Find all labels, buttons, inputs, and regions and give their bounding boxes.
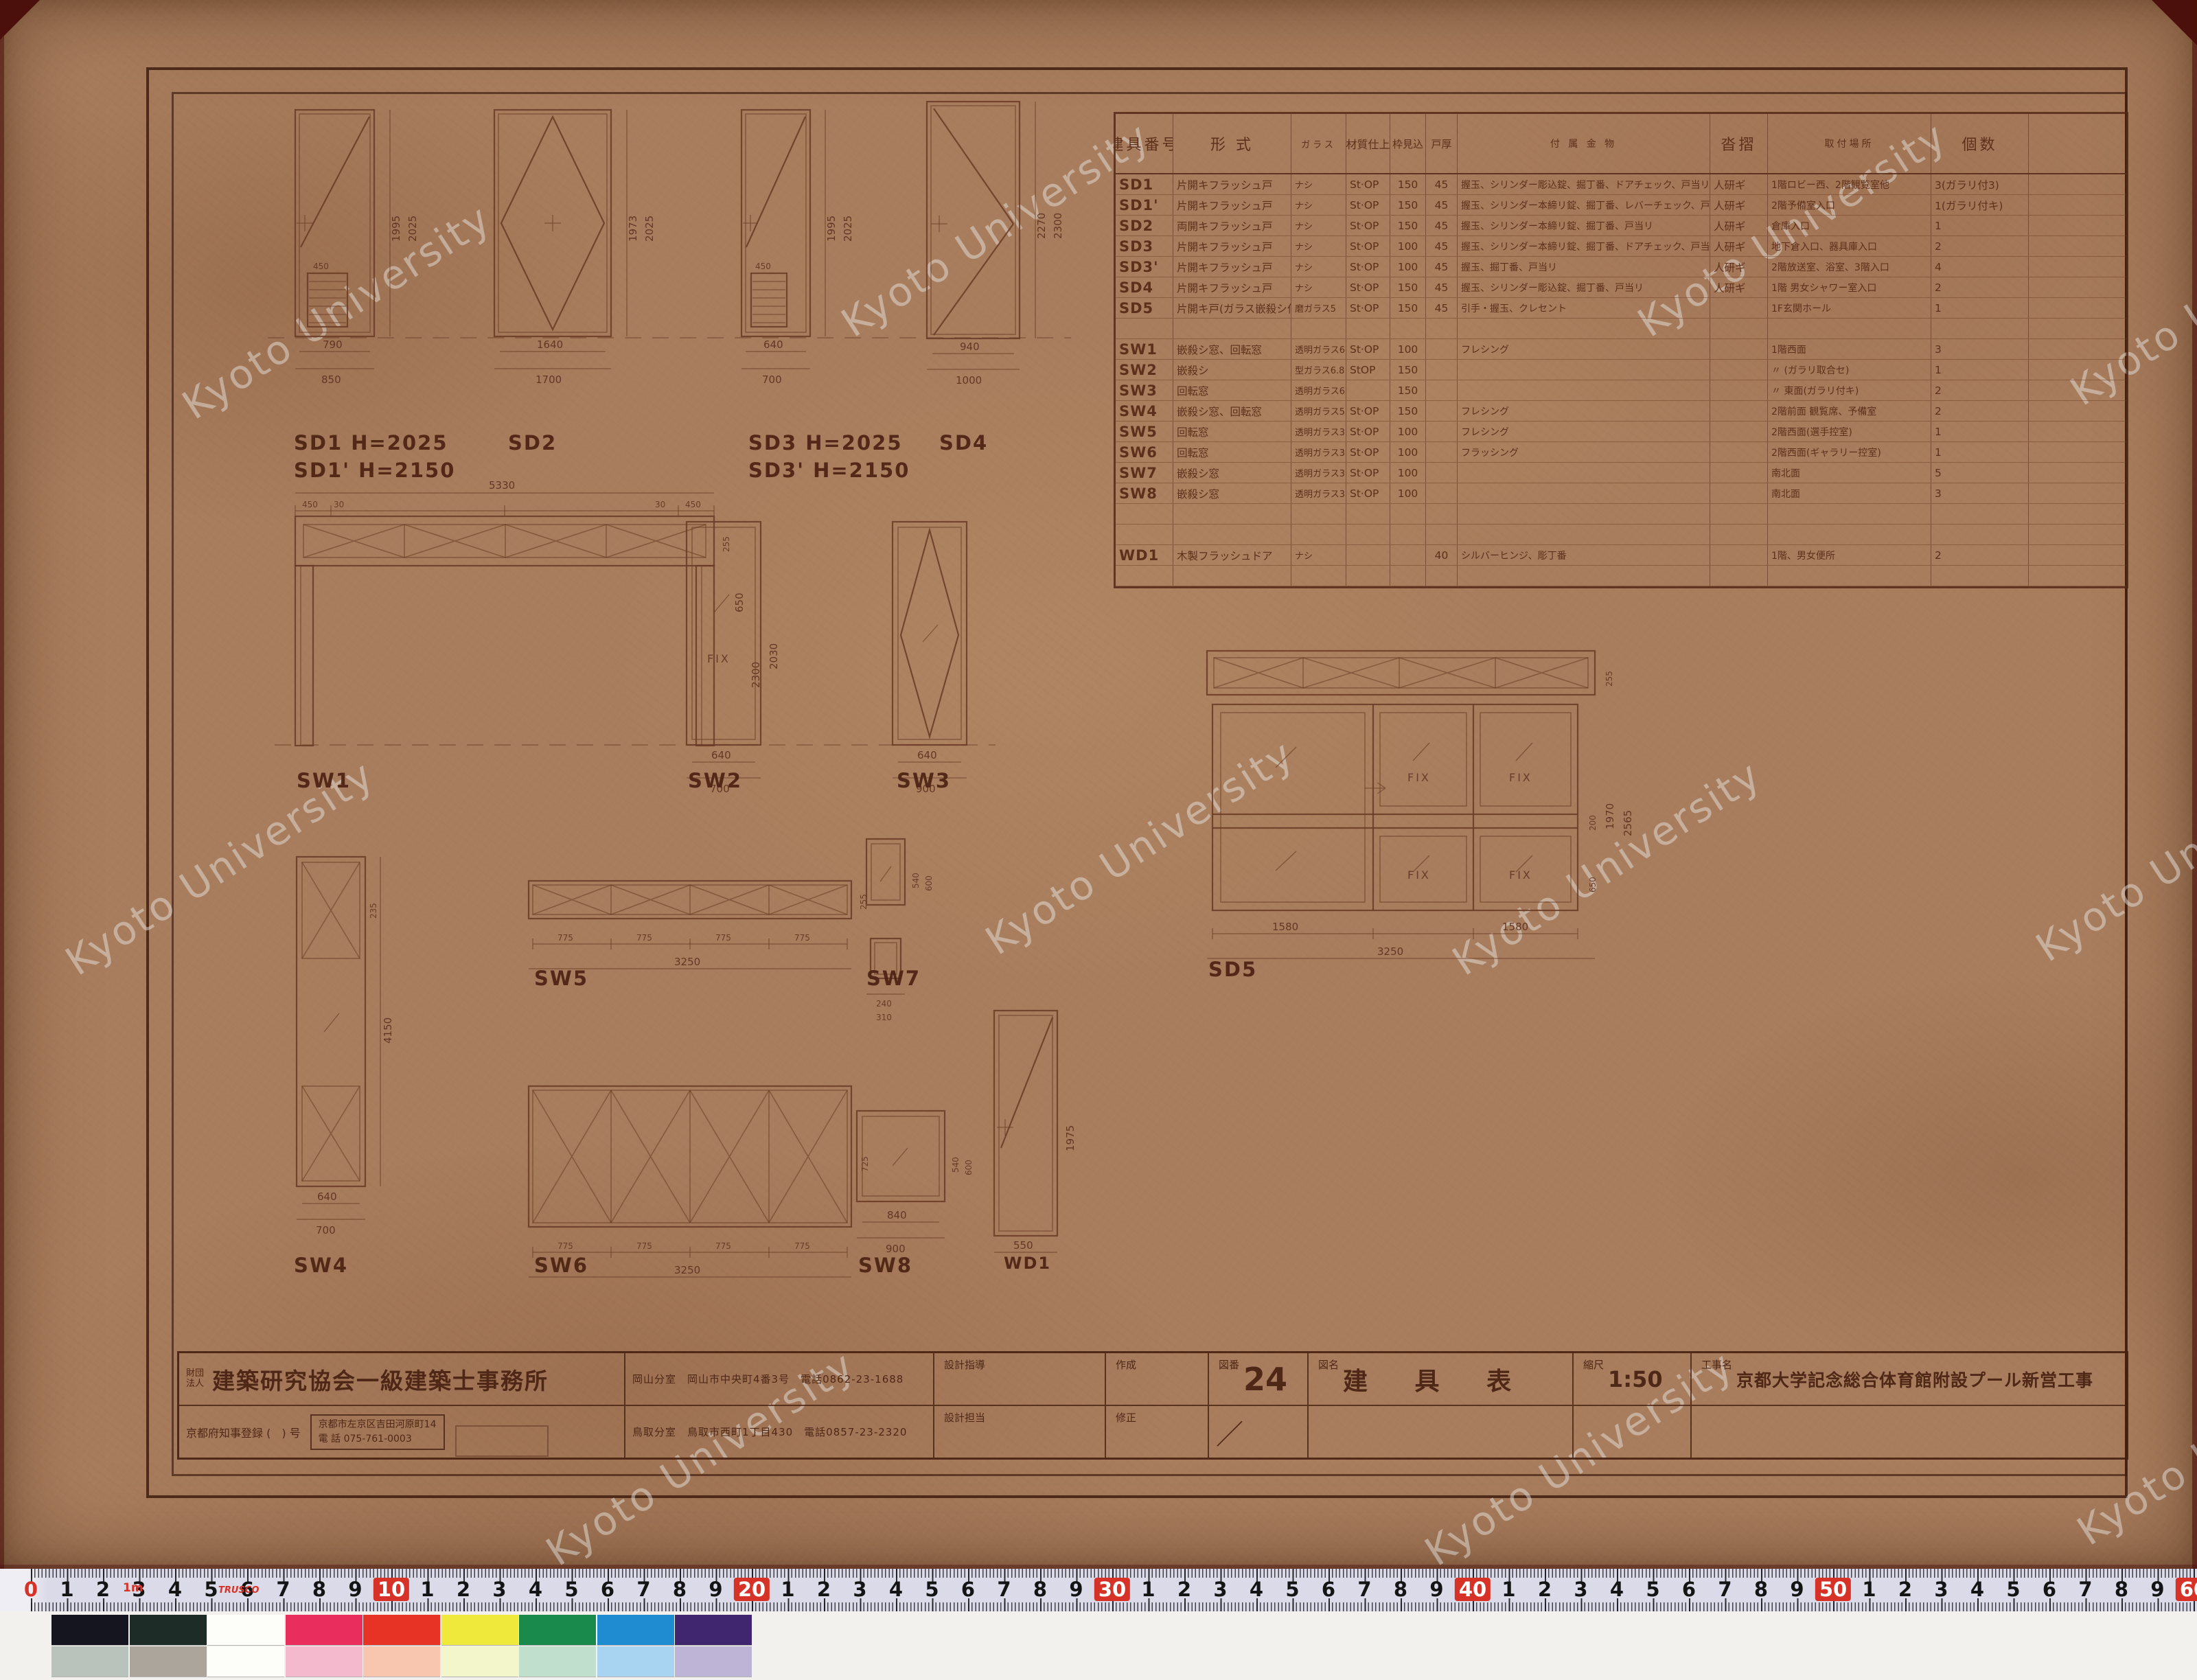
cell-thickness [1426, 504, 1458, 524]
cell-remarks [2029, 174, 2126, 194]
label-sd1b: SD1' H=2150 [294, 459, 455, 482]
cell-id: SW6 [1116, 442, 1173, 462]
cell-finish [1346, 504, 1390, 524]
ruler-number: 7 [997, 1578, 1011, 1601]
color-swatch [597, 1646, 674, 1677]
label-sw6: SW6 [534, 1254, 588, 1277]
cell-location: 南北面 [1768, 463, 1931, 483]
cell-location: 〃 東面(ガラリ付キ) [1768, 380, 1931, 400]
col-header: 沓摺 [1710, 114, 1768, 173]
ruler-number: 6 [1682, 1578, 1696, 1601]
cell-quantity: 1 [1931, 298, 2029, 318]
cell-glass: 透明ガラス3 [1291, 483, 1346, 503]
cell-name: 嵌殺シ窓、回転窓 [1173, 339, 1291, 359]
design-supervision-cell: 設計指導 [934, 1353, 1105, 1406]
revision-mark-cell: ／ [1209, 1406, 1307, 1458]
cell-remarks [2029, 504, 2126, 524]
color-swatch [675, 1646, 752, 1677]
cell-location: 1階、男女便所 [1768, 545, 1931, 565]
cell-location: 2階西面(選手控室) [1768, 422, 1931, 441]
cell-glass: ナシ [1291, 277, 1346, 297]
ruler-number: 6 [1322, 1578, 1335, 1601]
table-row: SD3 片開キフラッシュ戸 ナシ St·OP 100 45 握玉、シリンダー本締… [1116, 236, 2126, 257]
cell-name: 片開キフラッシュ戸 [1173, 174, 1291, 194]
cell-thickness [1426, 401, 1458, 421]
cell-name: 片開キフラッシュ戸 [1173, 257, 1291, 277]
cell-hardware: フレシング [1458, 401, 1710, 421]
cell-finish: StOP [1346, 360, 1390, 380]
cell-finish: St·OP [1346, 463, 1390, 483]
ruler-number: 1 [1502, 1578, 1515, 1601]
cell-sill [1710, 380, 1768, 400]
design-charge-cell: 設計担当 [934, 1406, 1105, 1458]
ruler-number: 9 [1429, 1578, 1443, 1601]
scale-label: 縮尺 [1583, 1357, 1604, 1372]
ruler-number: 1 [781, 1578, 794, 1601]
project-name: 京都大学記念総合体育館附設プール新営工事 [1736, 1367, 2093, 1392]
ruler-number: 6 [961, 1578, 975, 1601]
cell-remarks [2029, 257, 2126, 277]
cell-location [1768, 566, 1931, 586]
ruler-number: 5 [1285, 1578, 1299, 1601]
color-swatch [51, 1646, 128, 1677]
label-sw2: SW2 [688, 769, 742, 792]
scale-cell: 縮尺 1:50 [1574, 1353, 1690, 1406]
cell-finish: St·OP [1346, 236, 1390, 256]
label-sd3b: SD3' H=2150 [748, 459, 910, 482]
table-row: SW7 嵌殺シ窓 透明ガラス3 St·OP 100 南北面 5 [1116, 463, 2126, 483]
ruler-number: 2 [817, 1578, 831, 1601]
table-row: SW5 回転窓 透明ガラス3 St·OP 100 フレシング 2階西面(選手控室… [1116, 422, 2126, 442]
cell-frame-depth: 150 [1390, 380, 1426, 400]
ruler-number: 8 [2115, 1578, 2128, 1601]
measuring-tape-ruler: 0123456789101234567892012345678930123456… [0, 1569, 2197, 1611]
cell-remarks [2029, 442, 2126, 462]
cell-location: 倉庫入口 [1768, 216, 1931, 235]
cell-frame-depth: 150 [1390, 360, 1426, 380]
color-swatch [286, 1646, 363, 1677]
color-swatch-row-tints [51, 1646, 753, 1677]
ruler-number: 4 [529, 1578, 542, 1601]
cell-finish [1346, 545, 1390, 565]
cell-quantity: 5 [1931, 463, 2029, 483]
table-row: SW2 嵌殺シ 型ガラス6.8 StOP 150 〃 (ガラリ取合セ) 1 [1116, 360, 2126, 380]
cell-frame-depth: 150 [1390, 401, 1426, 421]
label-sd5: SD5 [1208, 958, 1257, 981]
cell-thickness: 40 [1426, 545, 1458, 565]
cell-name: 回転窓 [1173, 442, 1291, 462]
ruler-number: 60 [2176, 1578, 2197, 1601]
ruler-number: 9 [1069, 1578, 1083, 1601]
ruler-number: 2 [96, 1578, 110, 1601]
ruler-number: 1 [1141, 1578, 1155, 1601]
cell-id: SD1 [1116, 174, 1173, 194]
cell-frame-depth: 100 [1390, 463, 1426, 483]
cell-finish: St·OP [1346, 401, 1390, 421]
corner-shadow-topright [2152, 0, 2197, 45]
cell-name: 回転窓 [1173, 380, 1291, 400]
cell-id: SW7 [1116, 463, 1173, 483]
table-row: SW8 嵌殺シ窓 透明ガラス3 St·OP 100 南北面 3 [1116, 483, 2126, 504]
cell-quantity: 1(ガラリ付キ) [1931, 195, 2029, 215]
label-sw1: SW1 [297, 769, 351, 792]
cell-quantity: 3 [1931, 483, 2029, 503]
color-swatch [597, 1615, 674, 1645]
cell-thickness [1426, 566, 1458, 586]
ruler-number: 4 [1250, 1578, 1263, 1601]
project-name-cell: 工事名 京都大学記念総合体育館附設プール新営工事 [1692, 1353, 2126, 1406]
ruler-number: 7 [2078, 1578, 2092, 1601]
color-swatch [286, 1615, 363, 1645]
ruler-number: 1 [420, 1578, 434, 1601]
ruler-number: 4 [168, 1578, 182, 1601]
cell-location: 2階放送室、浴室、3階入口 [1768, 257, 1931, 277]
cell-frame-depth: 100 [1390, 442, 1426, 462]
cell-remarks [2029, 463, 2126, 483]
ruler-number: 9 [709, 1578, 722, 1601]
table-row: SD2 両開キフラッシュ戸 ナシ St·OP 150 45 握玉、シリンダー本締… [1116, 216, 2126, 236]
cell-glass: ナシ [1291, 216, 1346, 235]
registration-cell: 京都府知事登録 ( ) 号 京都市左京区吉田河原町14 電 話 075-761-… [179, 1406, 624, 1458]
cell-finish: St·OP [1346, 216, 1390, 235]
cell-glass: ナシ [1291, 195, 1346, 215]
ruler-number: 5 [925, 1578, 939, 1601]
table-row: WD1 木製フラッシュドア ナシ 40 シルバーヒンジ、彫丁番 1階、男女便所 … [1116, 545, 2126, 566]
cell-sill: 人研ギ [1710, 236, 1768, 256]
table-row: SD4 片開キフラッシュ戸 ナシ St·OP 150 45 握玉、シリンダー彫込… [1116, 277, 2126, 298]
col-header [2029, 114, 2126, 173]
cell-frame-depth [1390, 566, 1426, 586]
cell-name [1173, 566, 1291, 586]
cell-remarks [2029, 339, 2126, 359]
cell-id [1116, 566, 1173, 586]
table-row: SD3' 片開キフラッシュ戸 ナシ St·OP 100 45 握玉、掘丁番、戸当… [1116, 257, 2126, 277]
color-swatch [207, 1615, 284, 1645]
color-swatch-row-saturated [51, 1615, 753, 1645]
cell-hardware: 引手・握玉、クレセント [1458, 298, 1710, 318]
cell-remarks [2029, 360, 2126, 380]
cell-id [1116, 525, 1173, 544]
cell-id: SD2 [1116, 216, 1173, 235]
cell-finish: St·OP [1346, 483, 1390, 503]
cell-thickness [1426, 442, 1458, 462]
cell-glass: 透明ガラス3 [1291, 463, 1346, 483]
ruler-number: 1 [60, 1578, 73, 1601]
cell-sill: 人研ギ [1710, 174, 1768, 194]
cell-remarks [2029, 566, 2126, 586]
cell-hardware: 握玉、シリンダー本締リ錠、掘丁番、ドアチェック、戸当リ [1458, 236, 1710, 256]
cell-glass [1291, 525, 1346, 544]
ruler-number: 7 [636, 1578, 650, 1601]
label-sd4: SD4 [939, 431, 988, 454]
label-sw7: SW7 [866, 967, 921, 990]
scanned-drawing-page: Kyoto University Kyoto University Kyoto … [0, 0, 2197, 1680]
cell-glass: 型ガラス6.8 [1291, 360, 1346, 380]
cell-id [1116, 504, 1173, 524]
cell-sill [1710, 360, 1768, 380]
label-wd1: WD1 [1004, 1254, 1051, 1273]
cell-frame-depth: 100 [1390, 339, 1426, 359]
cell-frame-depth: 150 [1390, 174, 1426, 194]
empty-cell [1574, 1406, 1690, 1458]
cell-hardware [1458, 483, 1710, 503]
cell-hardware [1458, 566, 1710, 586]
cell-finish [1346, 380, 1390, 400]
cell-quantity: 3(ガラリ付3) [1931, 174, 2029, 194]
cell-sill [1710, 298, 1768, 318]
cell-name: 片開キ戸(ガラス嵌殺シ付、ガラリ付キ) [1173, 298, 1291, 318]
cell-frame-depth [1390, 319, 1426, 338]
cell-frame-depth: 150 [1390, 216, 1426, 235]
col-header: ガラス [1291, 114, 1346, 173]
cell-frame-depth: 150 [1390, 195, 1426, 215]
cell-quantity: 1 [1931, 422, 2029, 441]
cell-finish: St·OP [1346, 339, 1390, 359]
scale-value: 1:50 [1608, 1366, 1663, 1392]
table-row: SD5 片開キ戸(ガラス嵌殺シ付、ガラリ付キ) 磨ガラス5 St·OP 150 … [1116, 298, 2126, 319]
ruler-number: 3 [1934, 1578, 1948, 1601]
ruler-number: 4 [889, 1578, 903, 1601]
cell-name [1173, 525, 1291, 544]
color-swatch [441, 1646, 518, 1677]
label-sd1: SD1 H=2025 [294, 431, 448, 454]
table-row: SD1' 片開キフラッシュ戸 ナシ St·OP 150 45 握玉、シリンダー本… [1116, 195, 2126, 216]
label-sd2: SD2 [508, 431, 557, 454]
ruler-number: 8 [1033, 1578, 1047, 1601]
cell-glass: 透明ガラス3 [1291, 422, 1346, 441]
ruler-number: 9 [1790, 1578, 1804, 1601]
cell-quantity: 4 [1931, 257, 2029, 277]
label-sw8: SW8 [858, 1254, 912, 1277]
ruler-number: 20 [734, 1578, 770, 1601]
ruler-number: 2 [1898, 1578, 1912, 1601]
cell-location [1768, 504, 1931, 524]
cell-location: 地下倉入口、器具庫入口 [1768, 236, 1931, 256]
cell-frame-depth: 100 [1390, 422, 1426, 441]
drawing-title-label: 図名 [1318, 1357, 1339, 1372]
cell-quantity: 2 [1931, 277, 2029, 297]
ruler-number: 4 [1610, 1578, 1624, 1601]
firm-name: 建築研究協会一級建築士事務所 [212, 1363, 549, 1396]
cell-hardware: 握玉、シリンダー彫込錠、掘丁番、戸当リ [1458, 277, 1710, 297]
cell-glass [1291, 319, 1346, 338]
cell-location: 1階 男女シャワー室入口 [1768, 277, 1931, 297]
cell-hardware [1458, 525, 1710, 544]
table-row: SW4 嵌殺シ窓、回転窓 透明ガラス5 St·OP 150 フレシング 2階前面… [1116, 401, 2126, 422]
fixture-schedule-table: 建具番号 形 式 ガラス 材質仕上 枠見込 戸厚 付 属 金 物 沓摺 取付場所… [1114, 112, 2128, 588]
table-row [1116, 319, 2126, 339]
col-header: 形 式 [1173, 114, 1291, 173]
ruler-number: 7 [1357, 1578, 1371, 1601]
cell-glass: 透明ガラス3 [1291, 442, 1346, 462]
cell-sill [1710, 339, 1768, 359]
cell-name: 嵌殺シ窓、回転窓 [1173, 401, 1291, 421]
cell-frame-depth: 150 [1390, 298, 1426, 318]
ruler-number: 3 [1574, 1578, 1587, 1601]
cell-sill [1710, 401, 1768, 421]
branch2-cell: 鳥取分室 鳥取市西町1丁目430 電話0857-23-2320 [625, 1406, 933, 1458]
cell-quantity: 1 [1931, 216, 2029, 235]
cell-glass [1291, 504, 1346, 524]
cell-name: 嵌殺シ窓 [1173, 483, 1291, 503]
cell-sill [1710, 442, 1768, 462]
cell-glass: 透明ガラス6.8 [1291, 380, 1346, 400]
cell-location: 1F玄関ホール [1768, 298, 1931, 318]
cell-hardware: 握玉、シリンダー本締リ錠、掘丁番、レバーチェック、戸当リ [1458, 195, 1710, 215]
col-header: 建具番号 [1116, 114, 1173, 173]
cell-quantity: 2 [1931, 545, 2029, 565]
cell-glass: ナシ [1291, 545, 1346, 565]
empty-cell [1692, 1406, 2126, 1458]
cell-quantity [1931, 525, 2029, 544]
cell-thickness [1426, 422, 1458, 441]
cell-sill [1710, 525, 1768, 544]
cell-location: 1階ロビー西、2階観覧室他 [1768, 174, 1931, 194]
ruler-number: 3 [492, 1578, 506, 1601]
cell-id: SW2 [1116, 360, 1173, 380]
cell-name: 嵌殺シ [1173, 360, 1291, 380]
branch1-cell: 岡山分室 岡山市中央町4番3号 電話0862-23-1688 [625, 1353, 933, 1406]
schedule-body: SD1 片開キフラッシュ戸 ナシ St·OP 150 45 握玉、シリンダー彫込… [1116, 174, 2126, 586]
cell-glass: ナシ [1291, 257, 1346, 277]
cell-frame-depth: 100 [1390, 483, 1426, 503]
revised-cell: 修正 [1106, 1406, 1208, 1458]
cell-id: SW8 [1116, 483, 1173, 503]
ruler-number: 4 [1970, 1578, 1984, 1601]
ruler-number: 8 [1754, 1578, 1768, 1601]
cell-remarks [2029, 298, 2126, 318]
ruler-number: 3 [1213, 1578, 1227, 1601]
cell-hardware: シルバーヒンジ、彫丁番 [1458, 545, 1710, 565]
cell-thickness: 45 [1426, 277, 1458, 297]
drawing-title-cell: 図名 建 具 表 [1309, 1353, 1572, 1406]
ruler-meter-label: 1m [123, 1581, 143, 1595]
ruler-number: 0 [24, 1578, 38, 1601]
cell-thickness [1426, 319, 1458, 338]
cell-remarks [2029, 401, 2126, 421]
cell-finish: St·OP [1346, 174, 1390, 194]
empty-cell [1309, 1406, 1572, 1458]
cell-name [1173, 504, 1291, 524]
table-row [1116, 525, 2126, 545]
ruler-number: 5 [2006, 1578, 2020, 1601]
cell-thickness: 45 [1426, 216, 1458, 235]
ruler-number: 9 [348, 1578, 362, 1601]
cell-thickness: 45 [1426, 195, 1458, 215]
stamp-address: 京都市左京区吉田河原町14 [319, 1419, 437, 1430]
cell-hardware: フレシング [1458, 339, 1710, 359]
color-swatch [363, 1615, 440, 1645]
drawing-number: 24 [1243, 1361, 1287, 1398]
cell-id: SD1' [1116, 195, 1173, 215]
cell-id: SD4 [1116, 277, 1173, 297]
ruler-number: 6 [601, 1578, 614, 1601]
cell-location [1768, 319, 1931, 338]
firm-type-label: 財団 法人 [186, 1369, 207, 1389]
cell-id: SD3' [1116, 257, 1173, 277]
cell-hardware [1458, 360, 1710, 380]
cell-quantity: 2 [1931, 380, 2029, 400]
ruler-number: 5 [564, 1578, 578, 1601]
label-sw3: SW3 [897, 769, 951, 792]
cell-remarks [2029, 236, 2126, 256]
edge-shadow-right [2192, 0, 2197, 1569]
cell-finish [1346, 525, 1390, 544]
cell-location: 〃 (ガラリ取合セ) [1768, 360, 1931, 380]
scan-calibration-strip: 0123456789101234567892012345678930123456… [0, 1569, 2197, 1680]
cell-hardware: フラッシング [1458, 442, 1710, 462]
cell-hardware [1458, 504, 1710, 524]
cell-sill: 人研ギ [1710, 216, 1768, 235]
cell-sill [1710, 463, 1768, 483]
project-label: 工事名 [1701, 1357, 1732, 1372]
cell-finish: St·OP [1346, 422, 1390, 441]
cell-remarks [2029, 195, 2126, 215]
cell-thickness [1426, 360, 1458, 380]
table-row: SD1 片開キフラッシュ戸 ナシ St·OP 150 45 握玉、シリンダー彫込… [1116, 174, 2126, 195]
ruler-number: 3 [853, 1578, 866, 1601]
cell-location: 1階西面 [1768, 339, 1931, 359]
table-row [1116, 566, 2126, 586]
ruler-number: 30 [1094, 1578, 1130, 1601]
ruler-number: 8 [312, 1578, 326, 1601]
table-row [1116, 504, 2126, 525]
ruler-number: 9 [2150, 1578, 2164, 1601]
cell-quantity: 2 [1931, 236, 2029, 256]
cell-thickness: 45 [1426, 174, 1458, 194]
cell-hardware [1458, 380, 1710, 400]
cell-sill [1710, 566, 1768, 586]
col-header: 材質仕上 [1346, 114, 1390, 173]
color-swatch [130, 1646, 207, 1677]
ruler-number: 7 [276, 1578, 290, 1601]
cell-name: 嵌殺シ窓 [1173, 463, 1291, 483]
cell-quantity: 1 [1931, 442, 2029, 462]
color-swatch [363, 1646, 440, 1677]
cell-location: 2階前面 観覧席、予備室 [1768, 401, 1931, 421]
drawing-title: 建 具 表 [1343, 1361, 1530, 1397]
cell-name: 回転窓 [1173, 422, 1291, 441]
cell-sill: 人研ギ [1710, 195, 1768, 215]
cell-remarks [2029, 483, 2126, 503]
cell-name [1173, 319, 1291, 338]
cell-sill [1710, 545, 1768, 565]
cell-frame-depth [1390, 545, 1426, 565]
ruler-number: 2 [1538, 1578, 1552, 1601]
cell-finish [1346, 566, 1390, 586]
cell-sill [1710, 483, 1768, 503]
cell-hardware [1458, 463, 1710, 483]
cell-thickness [1426, 463, 1458, 483]
table-row: SW6 回転窓 透明ガラス3 St·OP 100 フラッシング 2階西面(ギャラ… [1116, 442, 2126, 463]
color-swatch [519, 1646, 596, 1677]
cell-id: WD1 [1116, 545, 1173, 565]
cell-remarks [2029, 525, 2126, 544]
ruler-number: 2 [457, 1578, 470, 1601]
color-swatch [51, 1615, 128, 1645]
cell-remarks [2029, 545, 2126, 565]
schedule-header-row: 建具番号 形 式 ガラス 材質仕上 枠見込 戸厚 付 属 金 物 沓摺 取付場所… [1116, 114, 2126, 174]
ruler-number: 6 [2043, 1578, 2056, 1601]
col-header: 個数 [1931, 114, 2029, 173]
cell-thickness: 45 [1426, 236, 1458, 256]
color-swatch [441, 1615, 518, 1645]
cell-glass [1291, 566, 1346, 586]
table-row: SW3 回転窓 透明ガラス6.8 150 〃 東面(ガラリ付キ) 2 [1116, 380, 2126, 401]
cell-location: 南北面 [1768, 483, 1931, 503]
cell-thickness [1426, 525, 1458, 544]
col-header: 戸厚 [1426, 114, 1458, 173]
